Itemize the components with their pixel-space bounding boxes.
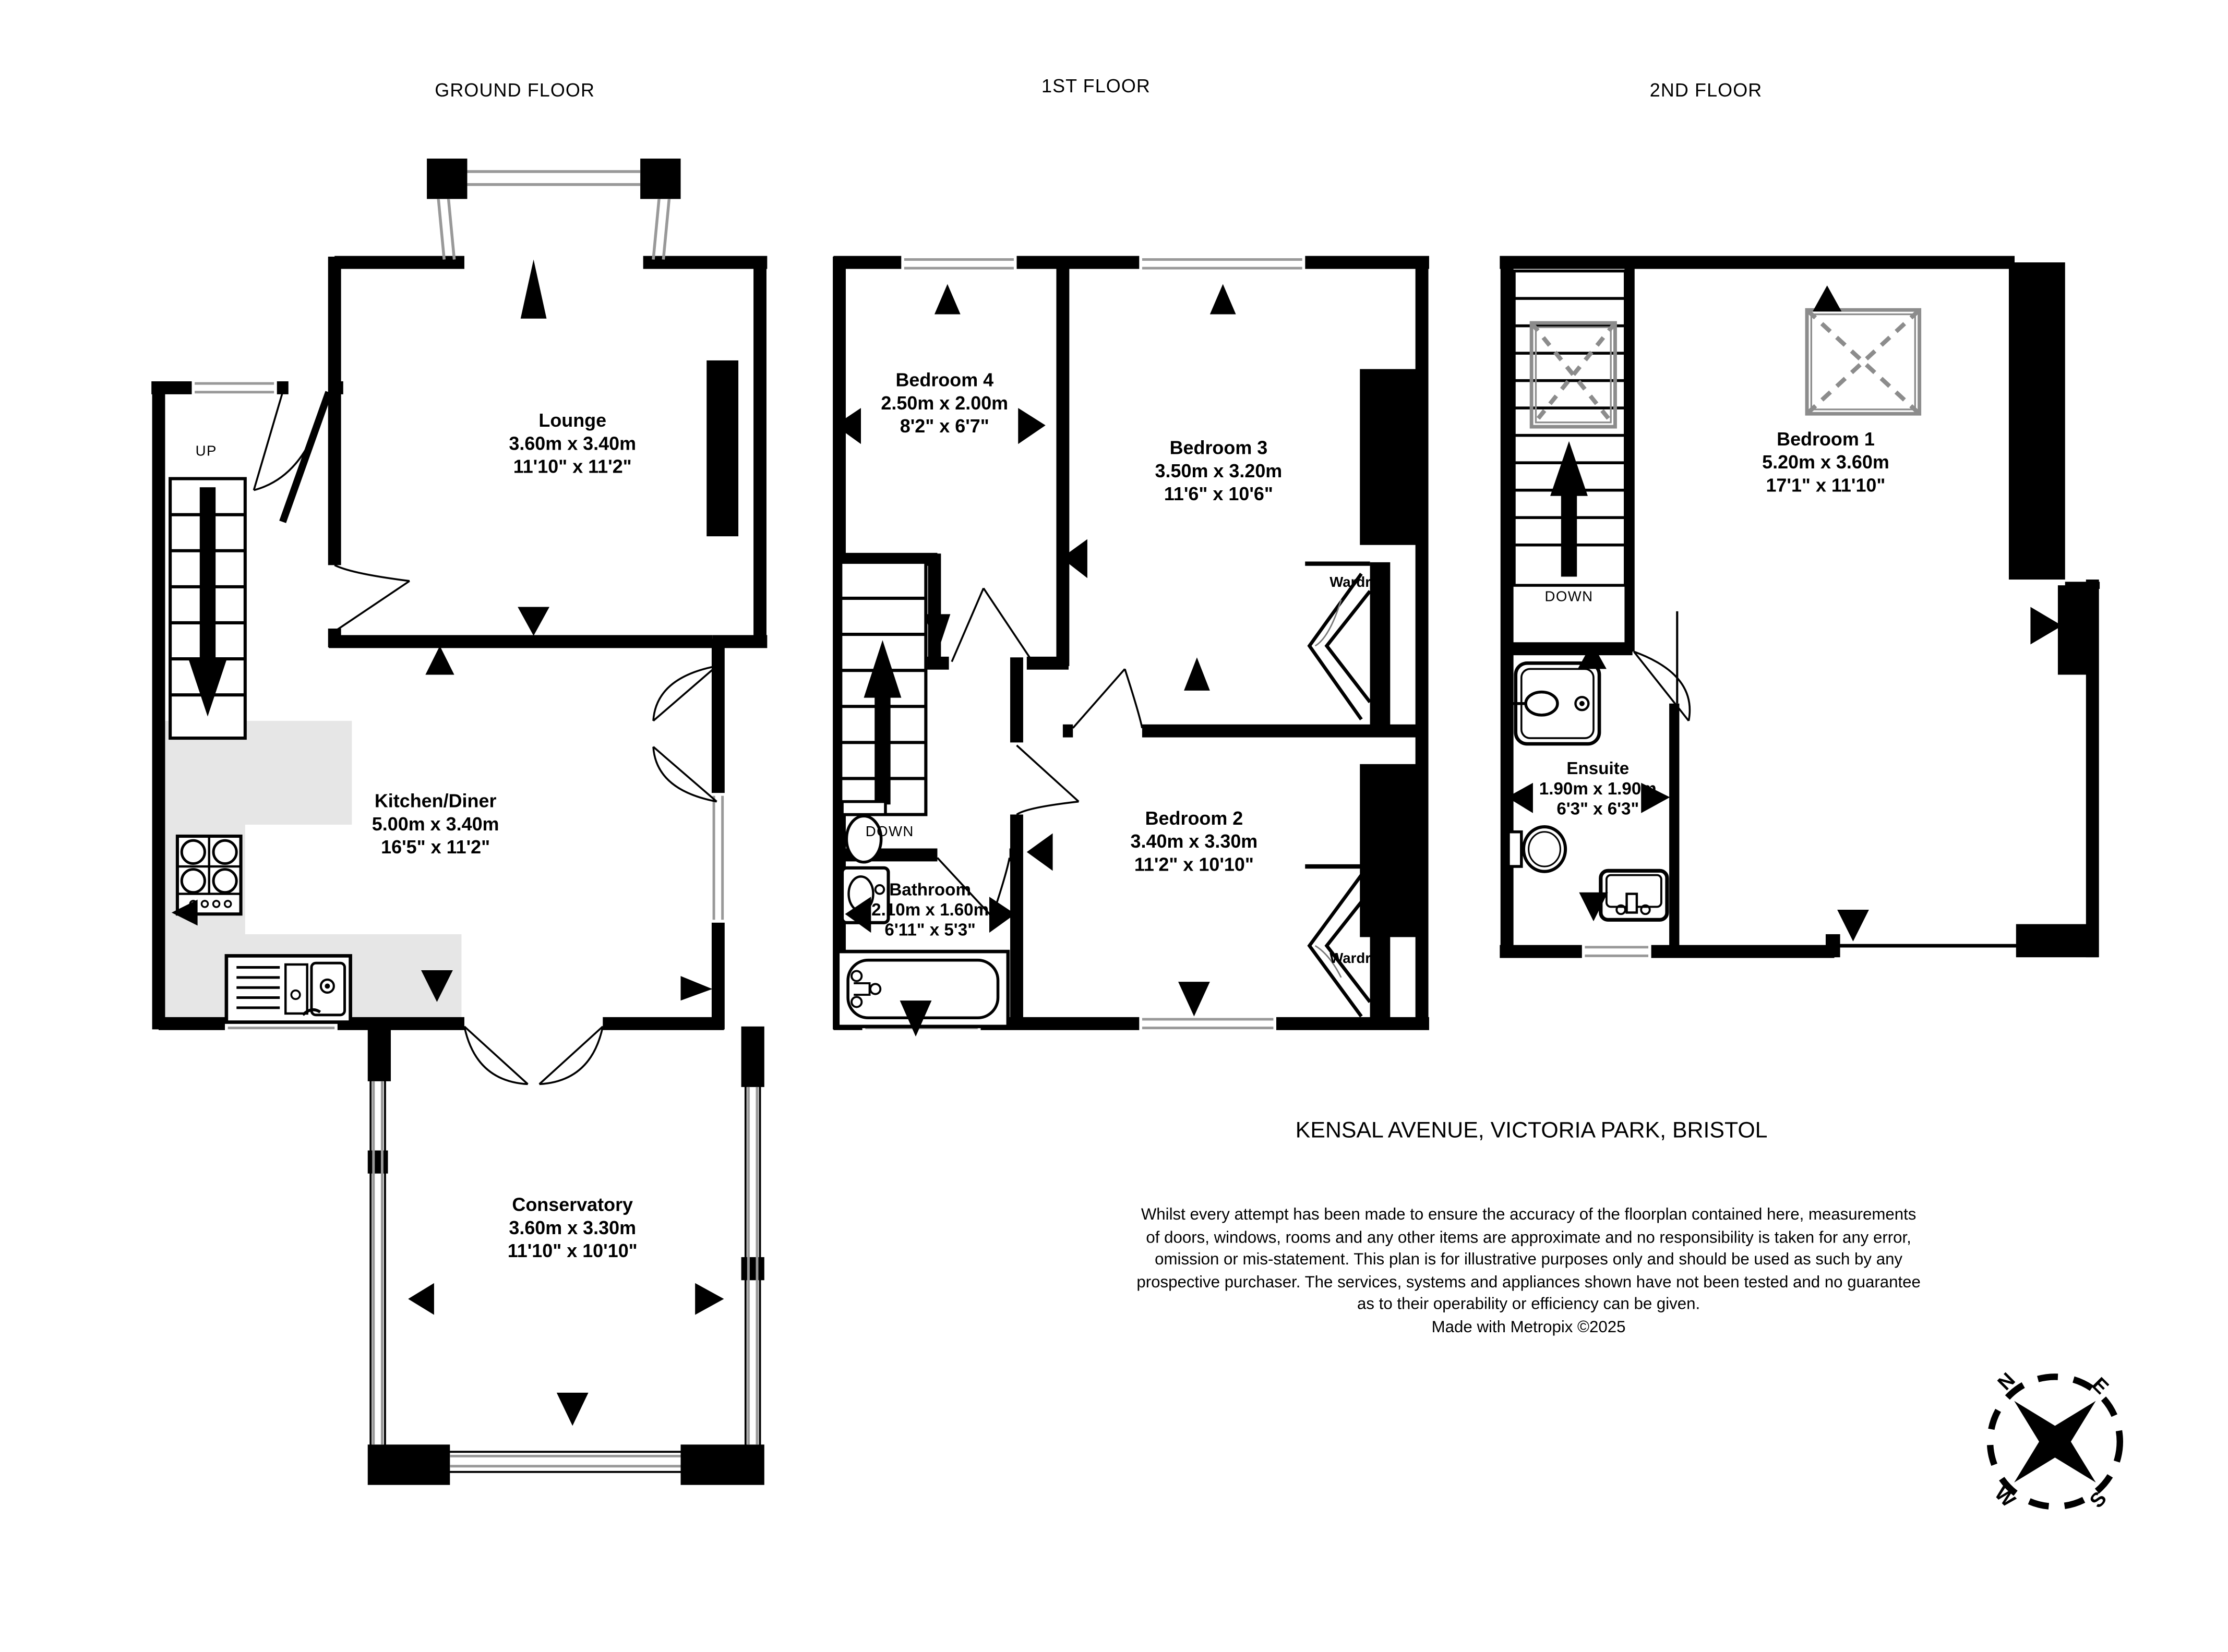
bedroom1-chimney [2009, 262, 2065, 580]
room-dim-imperial: 6'3" x 6'3" [1539, 799, 1657, 819]
stair-label-up: UP [196, 444, 217, 460]
room-dim-metric: 3.40m x 3.30m [1131, 830, 1258, 853]
first-floor-doors [937, 588, 1142, 917]
disclaimer-line: prospective purchaser. The services, sys… [966, 1272, 2091, 1295]
second-floor-doors [1634, 652, 1690, 721]
room-dim-imperial: 8'2" x 6'7" [881, 415, 1008, 438]
corner-wall [2016, 924, 2099, 958]
stair-label-down-second: DOWN [1544, 589, 1593, 605]
disclaimer-text: Whilst every attempt has been made to en… [966, 1205, 2091, 1340]
lounge-chimney [706, 360, 738, 536]
room-dim-metric: 3.60m x 3.30m [508, 1217, 638, 1240]
disclaimer-line: of doors, windows, rooms and any other i… [966, 1227, 2091, 1250]
room-name: Bedroom 2 [1131, 807, 1258, 830]
bedroom3-chimney [1360, 369, 1422, 545]
room-label-bedroom3: Bedroom 3 3.50m x 3.20m 11'6" x 10'6" [1155, 437, 1283, 506]
bedroom1-chimney-2 [2058, 585, 2092, 674]
room-dim-imperial: 11'10" x 10'10" [508, 1240, 638, 1263]
floorplan-page: GROUND FLOOR 1ST FLOOR 2ND FLOOR Lounge … [0, 0, 2228, 1652]
stairs-first [841, 562, 926, 815]
room-label-bathroom: Bathroom 2.10m x 1.60m 6'11" x 5'3" [871, 879, 989, 940]
room-dim-metric: 3.60m x 3.40m [509, 432, 636, 455]
room-dim-metric: 5.20m x 3.60m [1762, 451, 1889, 474]
bedroom2-chimney [1360, 764, 1422, 937]
hob-icon [177, 836, 241, 914]
bay-window-icon [427, 159, 680, 259]
skylight-icon [1807, 310, 1920, 414]
room-label-bedroom2: Bedroom 2 3.40m x 3.30m 11'2" x 10'10" [1131, 807, 1258, 877]
room-dim-imperial: 16'5" x 11'2" [372, 836, 499, 859]
room-dim-imperial: 11'2" x 10'10" [1131, 853, 1258, 876]
floor-title-first: 1ST FLOOR [1041, 75, 1151, 97]
floorplan-canvas: GROUND FLOOR 1ST FLOOR 2ND FLOOR Lounge … [0, 0, 2228, 1652]
disclaimer-line: Whilst every attempt has been made to en… [966, 1205, 2091, 1228]
floor-title-second: 2ND FLOOR [1650, 79, 1763, 101]
room-name: Bedroom 3 [1155, 437, 1283, 460]
floor-title-ground: GROUND FLOOR [435, 79, 595, 101]
room-dim-metric: 5.00m x 3.40m [372, 813, 499, 836]
room-name: Ensuite [1539, 758, 1657, 779]
room-dim-imperial: 6'11" x 5'3" [871, 920, 989, 940]
room-label-bedroom1: Bedroom 1 5.20m x 3.60m 17'1" x 11'10" [1762, 428, 1889, 498]
room-label-lounge: Lounge 3.60m x 3.40m 11'10" x 11'2" [509, 409, 636, 479]
second-floor-plan [1500, 257, 2100, 960]
stair-label-down-first: DOWN [866, 825, 914, 840]
property-address: KENSAL AVENUE, VICTORIA PARK, BRISTOL [1296, 1119, 1768, 1145]
ensuite-sink-icon [1601, 871, 1667, 920]
wardrobe-label-bottom: Wardrobe [1329, 951, 1373, 967]
room-name: Conservatory [508, 1193, 638, 1216]
room-name: Bedroom 4 [881, 369, 1008, 392]
room-dim-imperial: 11'6" x 10'6" [1155, 483, 1283, 506]
ensuite-toilet-icon [1508, 827, 1565, 872]
disclaimer-line: omission or mis-statement. This plan is … [966, 1250, 2091, 1272]
room-dim-imperial: 17'1" x 11'10" [1762, 474, 1889, 497]
room-dim-metric: 1.90m x 1.90m [1539, 778, 1657, 799]
room-label-ensuite: Ensuite 1.90m x 1.90m 6'3" x 6'3" [1539, 758, 1657, 819]
shower-icon [1508, 663, 1599, 744]
room-dim-metric: 3.50m x 3.20m [1155, 460, 1283, 483]
room-dim-metric: 2.10m x 1.60m [871, 900, 989, 920]
room-dim-imperial: 11'10" x 11'2" [509, 455, 636, 478]
wardrobe-icon-bottom [1305, 865, 1390, 1027]
room-label-bedroom4: Bedroom 4 2.50m x 2.00m 8'2" x 6'7" [881, 369, 1008, 439]
room-name: Bathroom [871, 879, 989, 900]
disclaimer-line: as to their operability or efficiency ca… [966, 1295, 2091, 1317]
floorplan-drawing [0, 0, 2228, 1652]
room-name: Bedroom 1 [1762, 428, 1889, 451]
sink-icon [226, 956, 351, 1022]
room-name: Lounge [509, 409, 636, 432]
room-name: Kitchen/Diner [372, 790, 499, 813]
room-label-kitchen-diner: Kitchen/Diner 5.00m x 3.40m 16'5" x 11'2… [372, 790, 499, 860]
stairs-ground [170, 479, 245, 738]
room-dim-metric: 2.50m x 2.00m [881, 392, 1008, 415]
wardrobe-label-top: Wardrobe [1329, 575, 1373, 591]
wall-stub [1826, 934, 1840, 957]
ensuite-window [1582, 943, 1651, 960]
metropix-credit: Made with Metropix ©2025 [966, 1317, 2091, 1340]
room-label-conservatory: Conservatory 3.60m x 3.30m 11'10" x 10'1… [508, 1193, 638, 1263]
